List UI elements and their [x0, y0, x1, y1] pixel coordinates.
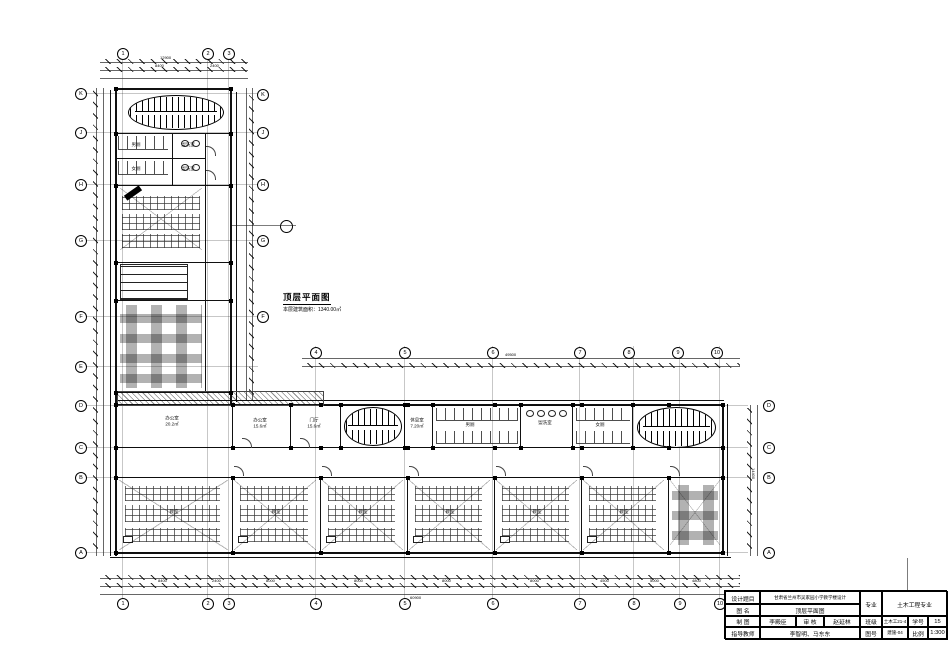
axis-bottom-2: 2	[202, 598, 214, 610]
dimension-line	[103, 88, 104, 556]
column	[114, 261, 118, 265]
axis-line-v	[315, 346, 316, 600]
axis-left-B: B	[75, 472, 87, 484]
column	[231, 476, 235, 480]
room-label: 女厕	[132, 166, 141, 172]
axis-top-2: 2	[202, 48, 214, 60]
axis-mid-7: 7	[574, 347, 586, 359]
axis-mid-4: 4	[310, 347, 322, 359]
axis-line-v	[579, 346, 580, 600]
wall	[727, 404, 728, 556]
axis-left-K: K	[75, 88, 87, 100]
sink-icon	[548, 410, 556, 417]
wall	[110, 557, 731, 558]
column	[667, 446, 671, 450]
column	[493, 551, 497, 555]
dim-bottom-seg: 8400	[158, 579, 167, 583]
axis-left-D: D	[75, 400, 87, 412]
column	[339, 446, 343, 450]
dim-bottom-seg: 8000	[530, 579, 539, 583]
dim-top-total: 12900	[160, 56, 171, 60]
axis-left-G: G	[75, 235, 87, 247]
room-label: 休息室 7.20㎡	[410, 417, 424, 428]
column	[667, 551, 671, 555]
column	[406, 551, 410, 555]
column	[114, 87, 118, 91]
stage-platform	[120, 264, 188, 300]
sheet-border-line	[907, 558, 908, 590]
tb-scale-label: 比例	[907, 626, 929, 640]
door-swing	[300, 438, 310, 448]
axis-rwing-H: H	[257, 179, 269, 191]
axis-mid-8: 8	[623, 347, 635, 359]
wall	[110, 90, 111, 556]
column	[114, 476, 118, 480]
axis-line-h	[86, 447, 748, 448]
room-label: 办公室 20.2㎡	[165, 415, 179, 426]
dim-right-total: 14400	[751, 468, 755, 479]
dimension-ticks	[100, 575, 740, 580]
axis-bottom-9: 9	[674, 598, 686, 610]
dimension-ticks	[249, 90, 254, 400]
toilet-stalls	[436, 408, 518, 421]
classroom-sightlines	[409, 480, 490, 550]
dim-bottom-total: 60900	[410, 596, 421, 600]
column	[580, 446, 584, 450]
column	[406, 476, 410, 480]
column	[231, 551, 235, 555]
column	[431, 446, 435, 450]
room-label: 教室	[620, 509, 629, 515]
column	[231, 446, 235, 450]
wall	[572, 404, 573, 447]
tb-major-label: 专业	[859, 591, 883, 617]
wall	[432, 404, 433, 447]
tb-figure-no: 建施-04	[881, 626, 909, 640]
column	[667, 403, 671, 407]
axis-left-J: J	[75, 127, 87, 139]
axis-rwing-G: G	[257, 235, 269, 247]
axis-left-A: A	[75, 547, 87, 559]
axis-bottom-1: 1	[117, 598, 129, 610]
column	[631, 403, 635, 407]
column	[229, 391, 233, 395]
column	[631, 446, 635, 450]
room-label: 盥洗室	[181, 142, 195, 148]
column	[114, 391, 118, 395]
axis-mid-5: 5	[399, 347, 411, 359]
column	[229, 261, 233, 265]
axis-bottom-4: 4	[310, 598, 322, 610]
dim-bottom-seg: 5000	[650, 579, 659, 583]
wall	[290, 404, 291, 447]
wall	[115, 158, 205, 159]
room-label: 女厕	[596, 422, 605, 428]
stair-rail	[135, 111, 218, 115]
column	[403, 446, 407, 450]
dim-bottom-seg: 8000	[442, 579, 451, 583]
column	[667, 476, 671, 480]
axis-top-1: 1	[117, 48, 129, 60]
classroom-sightlines	[234, 480, 316, 550]
column	[571, 403, 575, 407]
axis-bottom-8: 8	[628, 598, 640, 610]
toilet-stalls	[436, 431, 518, 444]
title-block: 设计题目 甘肃省兰州市吴家园小学教学楼设计 图 名 顶层平面图 制 图 李殿臣 …	[724, 590, 947, 639]
room-name: 门厅	[309, 417, 318, 422]
door-swing	[496, 466, 506, 476]
dimension-ticks	[100, 67, 248, 72]
door-swing	[322, 466, 332, 476]
column	[721, 403, 725, 407]
column	[721, 551, 725, 555]
column	[114, 551, 118, 555]
column	[580, 551, 584, 555]
column	[289, 403, 293, 407]
column	[339, 403, 343, 407]
door-swing	[206, 146, 216, 156]
sink-icon	[526, 410, 534, 417]
toilet-stalls	[118, 161, 168, 175]
axis-rwing-J: J	[257, 127, 269, 139]
column	[114, 446, 118, 450]
axis-bottom-5: 5	[399, 598, 411, 610]
dimension-ticks	[100, 583, 740, 588]
reading-room-tables	[120, 305, 202, 388]
column	[319, 476, 323, 480]
axis-line-v	[228, 58, 229, 600]
column	[519, 403, 523, 407]
classroom-sightlines	[583, 480, 664, 550]
axis-rwing-K: K	[257, 89, 269, 101]
column	[229, 132, 233, 136]
dimension-line	[757, 405, 758, 556]
dimension-ticks	[747, 408, 752, 554]
dimension-ticks	[302, 363, 740, 368]
hall-sightlines	[120, 188, 202, 250]
column	[229, 87, 233, 91]
axis-rwing-F: F	[257, 311, 269, 323]
classroom-sightlines	[119, 480, 228, 550]
axis-line-h	[86, 552, 748, 553]
dim-top-seg: 8400	[155, 64, 164, 68]
tb-figure-no-label: 图号	[859, 626, 883, 640]
column	[571, 446, 575, 450]
wall	[115, 300, 232, 301]
classroom-sightlines	[322, 480, 403, 550]
stair-mid	[344, 407, 402, 446]
axis-line-h	[86, 477, 748, 478]
axis-left-F: F	[75, 311, 87, 323]
classroom-sightlines	[496, 480, 577, 550]
axis-rmain-C: C	[763, 442, 775, 454]
column	[289, 446, 293, 450]
room-area: 15.6㎡	[307, 423, 320, 428]
column	[319, 403, 323, 407]
axis-bottom-7: 7	[574, 598, 586, 610]
room-label: 教室	[170, 509, 179, 515]
axis-bottom-6: 6	[487, 598, 499, 610]
axis-line-h	[86, 93, 258, 94]
dimension-line	[246, 88, 247, 400]
column	[431, 403, 435, 407]
room-name: 办公室	[165, 415, 179, 420]
room-label: 男厕	[466, 422, 475, 428]
toilet-stalls	[576, 431, 630, 444]
dim-bottom-seg: 8000	[266, 579, 275, 583]
walkway-hatch	[117, 391, 324, 406]
axis-line-v	[633, 346, 634, 600]
axis-rmain-D: D	[763, 400, 775, 412]
column	[229, 299, 233, 303]
axis-line-v	[719, 346, 720, 600]
sink-icon	[559, 410, 567, 417]
column	[721, 476, 725, 480]
room-name: 休息室	[410, 417, 424, 422]
axis-mid-10: 10	[711, 347, 723, 359]
room-label: 盥洗室	[538, 420, 552, 426]
axis-line-v	[404, 346, 405, 600]
column	[493, 476, 497, 480]
tb-scale: 1:300	[927, 626, 948, 640]
column	[319, 446, 323, 450]
column	[319, 551, 323, 555]
dimension-line	[100, 78, 248, 79]
column	[114, 299, 118, 303]
dim-top-seg: 2400	[210, 64, 219, 68]
room-label: 教室	[533, 509, 542, 515]
wall	[115, 88, 232, 90]
axis-bottom-3: 3	[223, 598, 235, 610]
room-area: 20.2㎡	[165, 421, 178, 426]
wall	[520, 404, 521, 447]
door-swing	[234, 466, 244, 476]
wall	[230, 88, 232, 406]
room-area: 15.6㎡	[253, 423, 266, 428]
room-label: 教室	[446, 509, 455, 515]
room-label: 门厅 15.6㎡	[307, 417, 320, 428]
tb-advisor: 李智明、马东东	[759, 626, 861, 640]
axis-rmain-B: B	[763, 472, 775, 484]
room-label: 盥洗室	[181, 166, 195, 172]
dimension-ticks	[93, 90, 98, 554]
dim-bottom-seg: 4500	[600, 579, 609, 583]
plan-title: 顶层平面图	[283, 291, 331, 305]
plan-area-note: 本层建筑面积：1340.00㎡	[283, 306, 341, 313]
room-label: 教室	[272, 509, 281, 515]
column	[403, 403, 407, 407]
axis-mid-6: 6	[487, 347, 499, 359]
column	[721, 446, 725, 450]
axis-mid-9: 9	[672, 347, 684, 359]
column	[114, 403, 118, 407]
column	[229, 184, 233, 188]
column	[114, 184, 118, 188]
dim-bottom-seg: 8000	[354, 579, 363, 583]
column	[114, 132, 118, 136]
door-swing	[206, 170, 216, 180]
wall	[172, 133, 173, 185]
door-swing	[242, 438, 252, 448]
room-label: 男厕	[132, 142, 141, 148]
wall	[232, 404, 233, 447]
axis-left-H: H	[75, 179, 87, 191]
tb-advisor-label: 指导教师	[725, 626, 761, 640]
column	[493, 403, 497, 407]
axis-rmain-A: A	[763, 547, 775, 559]
column	[231, 403, 235, 407]
dim-bottom-seg: 4800	[692, 579, 701, 583]
door-swing	[583, 466, 593, 476]
sink-icon	[537, 410, 545, 417]
wall	[340, 404, 341, 447]
axis-line-v	[492, 346, 493, 600]
detail-callout-icon	[280, 220, 293, 233]
room-name: 办公室	[253, 417, 267, 422]
dim-mid-total: 49500	[505, 353, 516, 357]
column	[519, 446, 523, 450]
toilet-stalls	[118, 136, 168, 150]
column	[580, 403, 584, 407]
wall	[236, 92, 237, 402]
classroom-sightlines	[670, 480, 720, 545]
room-label: 教室	[359, 509, 368, 515]
room-area: 7.20㎡	[410, 423, 423, 428]
cad-sheet: 顶层平面图 本层建筑面积：1340.00㎡ 1 2 3 4 5 6 7 8 9 …	[0, 0, 950, 672]
column	[493, 446, 497, 450]
column	[580, 476, 584, 480]
room-label: 办公室 15.6㎡	[253, 417, 267, 428]
toilet-stalls	[576, 408, 630, 421]
tb-major: 土木工程专业	[881, 591, 948, 617]
axis-top-3: 3	[223, 48, 235, 60]
stair-top-wing	[128, 95, 224, 130]
axis-left-E: E	[75, 361, 87, 373]
callout-line	[232, 225, 296, 226]
axis-left-C: C	[75, 442, 87, 454]
wall	[115, 185, 232, 186]
dim-bottom-seg: 2400	[212, 579, 221, 583]
door-swing	[409, 466, 419, 476]
stair-rail	[348, 425, 397, 430]
stair-right	[637, 407, 716, 448]
stair-rail	[643, 426, 711, 431]
